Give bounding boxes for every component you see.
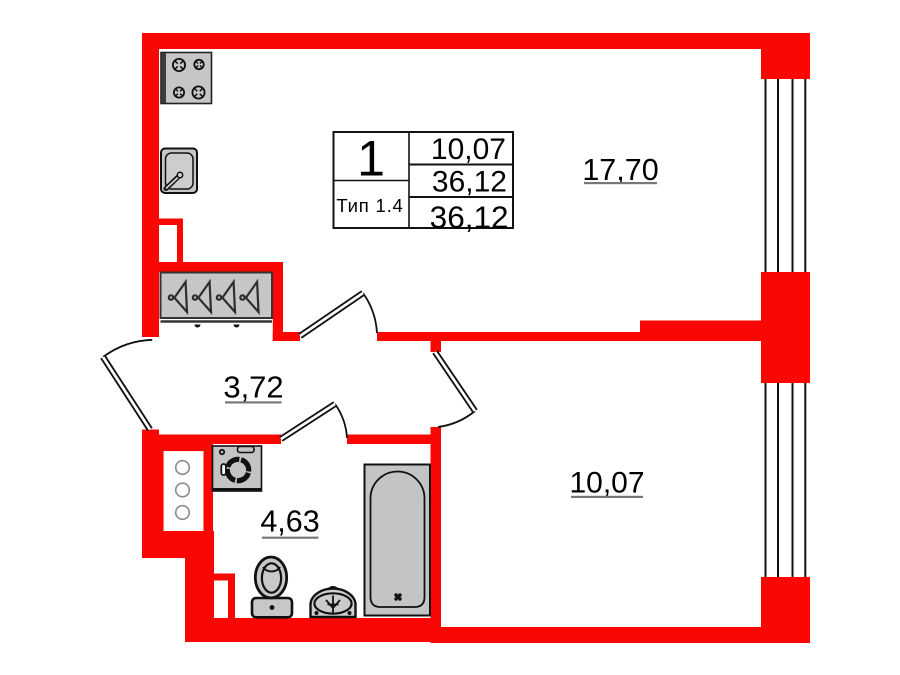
svg-text:Тип 1.4: Тип 1.4	[336, 195, 403, 216]
svg-text:3,72: 3,72	[223, 369, 283, 404]
svg-text:1: 1	[357, 131, 385, 187]
svg-text:10,07: 10,07	[431, 133, 506, 166]
svg-text:10,07: 10,07	[569, 467, 644, 500]
svg-text:4,63: 4,63	[260, 505, 319, 539]
svg-text:36,12: 36,12	[432, 166, 507, 199]
svg-text:36,12: 36,12	[430, 199, 509, 235]
svg-text:17,70: 17,70	[582, 153, 658, 187]
